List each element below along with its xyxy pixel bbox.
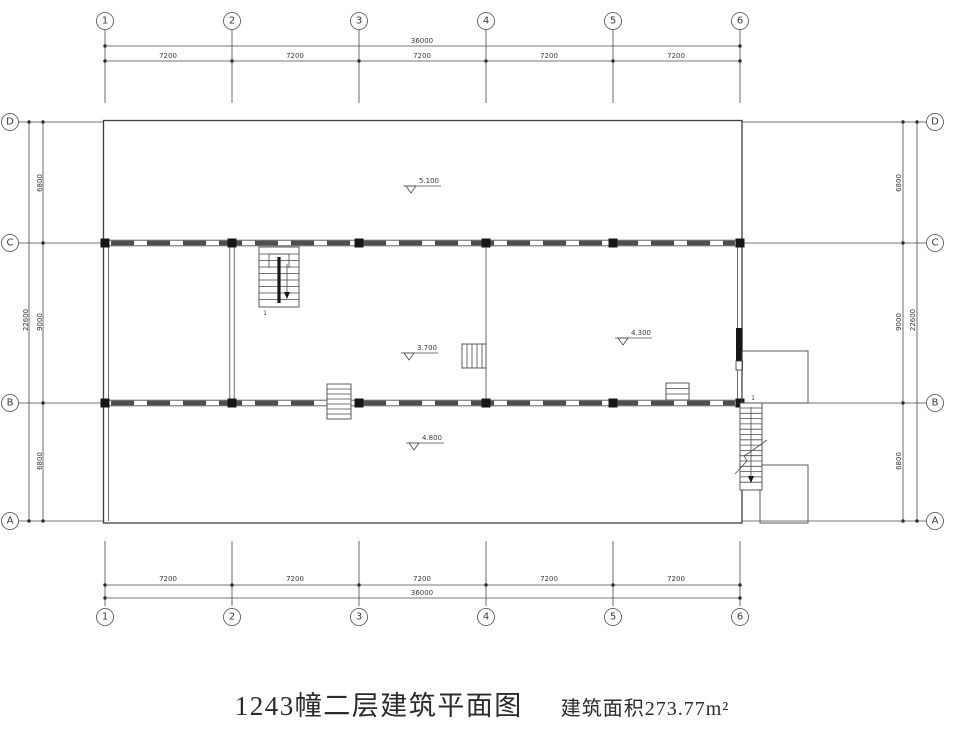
dim-label-top-span-5: 7200	[667, 52, 685, 60]
grid-bubble-bottom-5: 5	[610, 612, 616, 623]
level-marker-5100: 5.100	[403, 177, 441, 193]
right-wall-pier	[736, 361, 743, 370]
floor-plan-canvas: 36000 7200 7200 7200 7200 7200 1 2 3 4 5…	[0, 0, 964, 733]
grid-bubble-right-b: B	[932, 398, 939, 409]
left-grid-bubbles: D C B A	[2, 114, 19, 530]
column-c2	[228, 239, 237, 248]
drawing-title: 1243幢二层建筑平面图	[235, 691, 523, 721]
dim-label-right-span-2: 9000	[895, 313, 903, 331]
column-b5	[609, 399, 618, 408]
dim-label-right-span-3: 6800	[895, 452, 903, 470]
grid-bubble-bottom-1: 1	[102, 612, 108, 623]
column-b3	[355, 399, 364, 408]
grid-bubble-left-a: A	[7, 516, 14, 527]
dim-label-left-span-3: 6800	[36, 452, 44, 470]
grid-bubble-top-1: 1	[102, 16, 108, 27]
right-wall-solid-segment	[736, 328, 743, 361]
column-b2	[228, 399, 237, 408]
dim-label-left-span-2: 9000	[36, 313, 44, 331]
dim-label-top-span-4: 7200	[540, 52, 558, 60]
main-staircase-divider	[277, 257, 280, 303]
column-c3	[355, 239, 364, 248]
left-row-leaders	[19, 122, 103, 521]
grid-bubble-right-d: D	[931, 117, 939, 128]
level-value-middle-hall: 3.700	[417, 344, 437, 352]
grid-bubble-left-c: C	[7, 238, 14, 249]
grid-bubble-top-3: 3	[356, 16, 362, 27]
floor-plan-page: 36000 7200 7200 7200 7200 7200 1 2 3 4 5…	[0, 0, 964, 733]
dim-label-right-span-1: 6800	[895, 174, 903, 192]
right-grid-annotation: 6800 9000 6800 22600 D C B A	[742, 114, 944, 530]
grid-bubble-top-5: 5	[610, 16, 616, 27]
building-area-note: 建筑面积273.77m²	[561, 698, 730, 720]
grid-bubble-bottom-3: 3	[356, 612, 362, 623]
steps-axis-b-left	[327, 384, 351, 419]
dim-label-top-span-2: 7200	[286, 52, 304, 60]
grid-bubble-top-4: 4	[483, 16, 489, 27]
dim-label-top-span-3: 7200	[413, 52, 431, 60]
column-c1	[101, 239, 110, 248]
column-b1	[101, 399, 110, 408]
dim-label-bottom-span-1: 7200	[159, 575, 177, 583]
partition-axis-2	[230, 247, 234, 399]
level-value-upper-hall: 5.100	[419, 177, 439, 185]
dim-label-bottom-total: 36000	[411, 589, 433, 597]
grid-bubble-right-c: C	[932, 238, 939, 249]
dim-label-left-span-1: 6800	[36, 174, 44, 192]
exterior-staircase: 1	[735, 395, 767, 490]
dim-label-bottom-span-4: 7200	[540, 575, 558, 583]
bottom-grid-annotation: 7200 7200 7200 7200 7200 36000 1 2 3 4 5…	[97, 541, 749, 626]
steps-axis-b-right	[666, 383, 689, 400]
wall-axis-b	[101, 399, 745, 408]
grid-bubble-left-d: D	[6, 117, 14, 128]
grid-bubble-right-a: A	[932, 516, 939, 527]
dim-label-bottom-span-5: 7200	[667, 575, 685, 583]
level-value-right-room: 4.300	[631, 329, 651, 337]
top-grid-bubbles: 1 2 3 4 5 6	[97, 13, 749, 30]
dim-label-top-span-1: 7200	[159, 52, 177, 60]
column-c6	[736, 239, 745, 248]
main-staircase: 1	[259, 247, 299, 317]
level-marker-3700: 3.700	[401, 344, 438, 360]
dim-label-bottom-span-3: 7200	[413, 575, 431, 583]
building-plan: 1 1 5.100	[101, 121, 809, 524]
level-value-lower-hall: 4.800	[422, 434, 442, 442]
grid-bubble-bottom-4: 4	[483, 612, 489, 623]
level-marker-4800: 4.800	[406, 434, 444, 450]
top-grid-annotation: 36000 7200 7200 7200 7200 7200 1 2 3 4 5…	[97, 13, 749, 104]
exterior-staircase-label: 1	[751, 395, 755, 402]
level-marker-4300: 4.300	[615, 329, 652, 345]
grid-bubble-bottom-6: 6	[737, 612, 743, 623]
dim-label-top-total: 36000	[411, 37, 433, 45]
left-grid-annotation: 6800 9000 6800 22600 D C B A	[2, 114, 104, 530]
steps-axis-4	[462, 344, 486, 368]
dim-label-left-total: 22600	[22, 309, 30, 331]
column-b4	[482, 399, 491, 408]
grid-bubble-top-6: 6	[737, 16, 743, 27]
lower-right-landing	[760, 465, 808, 523]
dim-label-bottom-span-2: 7200	[286, 575, 304, 583]
wall-axis-c	[101, 239, 745, 248]
bottom-grid-bubbles: 1 2 3 4 5 6	[97, 609, 749, 626]
grid-bubble-top-2: 2	[229, 16, 235, 27]
grid-bubble-left-b: B	[7, 398, 14, 409]
column-c5	[609, 239, 618, 248]
dim-label-right-total: 22600	[909, 309, 917, 331]
title-block: 1243幢二层建筑平面图建筑面积273.77m²	[0, 684, 964, 723]
right-grid-bubbles: D C B A	[927, 114, 944, 530]
main-staircase-label: 1	[263, 310, 267, 317]
grid-bubble-bottom-2: 2	[229, 612, 235, 623]
column-c4	[482, 239, 491, 248]
